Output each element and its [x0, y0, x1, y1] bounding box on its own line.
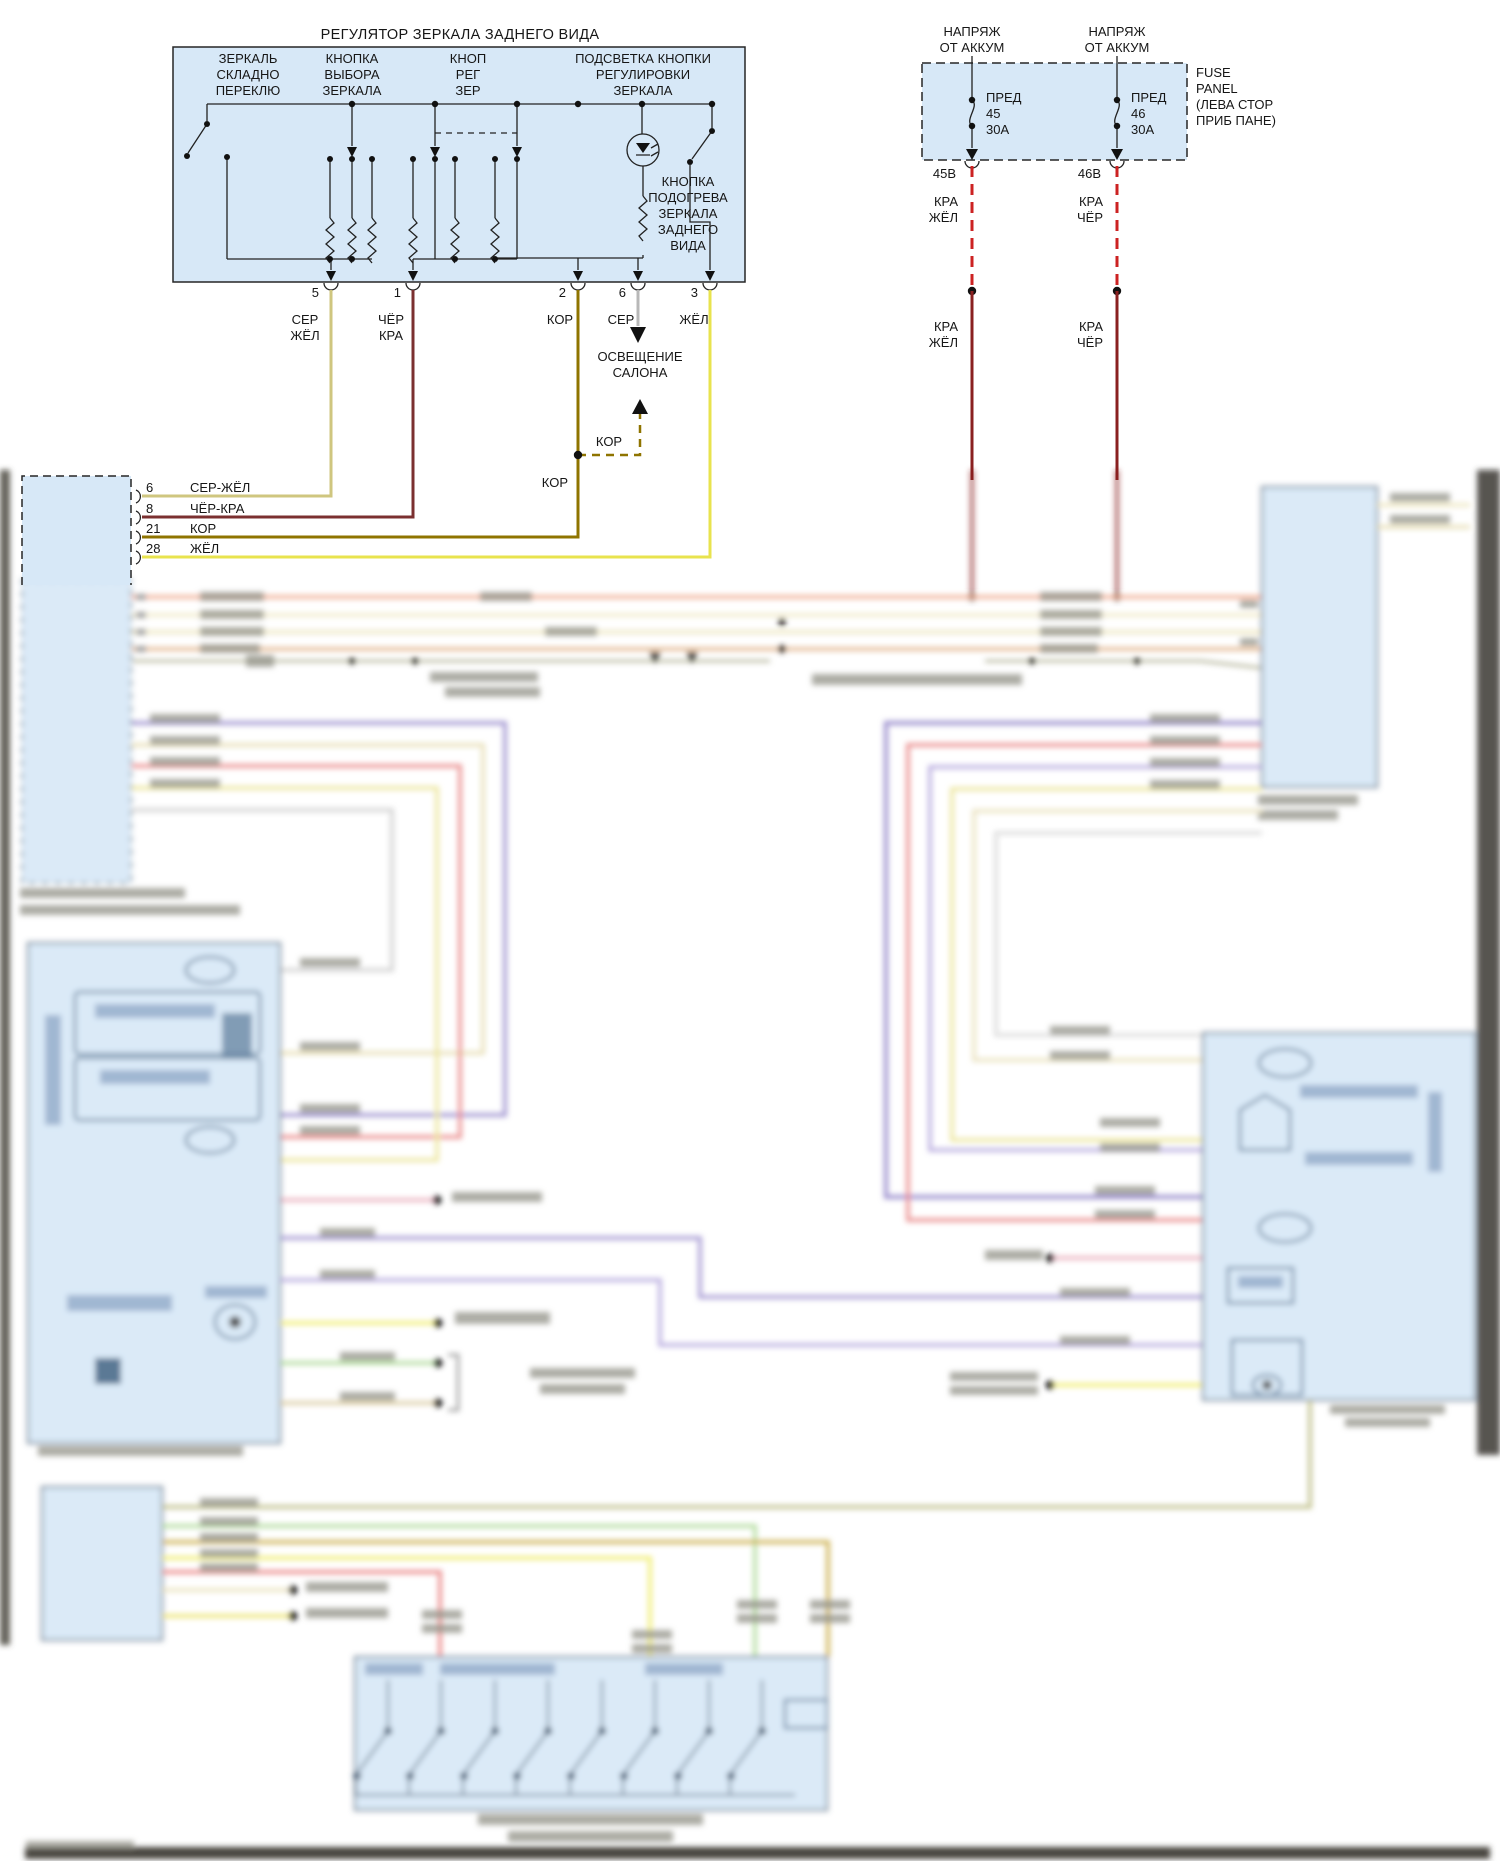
fuse-panel-box — [922, 63, 1187, 160]
arrow-down-icon — [630, 327, 646, 343]
wire-color-label: КРА — [1079, 194, 1103, 209]
blur-haze-overlay — [0, 470, 1500, 1861]
fuse-label: ПРЕД — [1131, 90, 1167, 105]
fuse-panel-name: FUSE — [1196, 65, 1231, 80]
wire-color-label: КРА — [1079, 319, 1103, 334]
wiring-diagram: РЕГУЛЯТОР ЗЕРКАЛА ЗАДНЕГО ВИДА ЗЕРКАЛЬ С… — [0, 0, 1500, 1861]
heater-switch-label: КНОПКА — [662, 174, 715, 189]
wire-color-label: ЖЁЛ — [679, 312, 708, 327]
mirror-block-pins: 5 1 2 6 3 — [312, 283, 717, 300]
adjust-switch-label: ЗЕР — [455, 83, 480, 98]
fuse-label: ПРЕД — [986, 90, 1022, 105]
fuse-panel-name: PANEL — [1196, 81, 1238, 96]
connector-pin-color: ЧЁР-КРА — [190, 501, 245, 516]
cabin-light-label: ОСВЕЩЕНИЕ — [597, 349, 682, 364]
wire-color-label: КОР — [542, 475, 568, 490]
adjust-switch-label: КНОП — [450, 51, 486, 66]
fuse-label: 30А — [1131, 122, 1154, 137]
wire-color-label: ЖЁЛ — [929, 335, 958, 350]
connector-pin-color: КОР — [190, 521, 216, 536]
connector-pin-number: 28 — [146, 541, 160, 556]
adjust-switch-label: РЕГ — [456, 67, 480, 82]
left-connector-box — [22, 476, 131, 585]
backlight-label: ПОДСВЕТКА КНОПКИ — [575, 51, 711, 66]
pin-number: 3 — [691, 285, 698, 300]
pin-number: 6 — [619, 285, 626, 300]
pin-number: 1 — [394, 285, 401, 300]
fuse-panel-name: (ЛЕВА СТОР — [1196, 97, 1273, 112]
fold-switch-label: ПЕРЕКЛЮ — [216, 83, 281, 98]
select-switch-label: ВЫБОРА — [324, 67, 379, 82]
wire-color-label: ЖЁЛ — [290, 328, 319, 343]
wire-color-label: ЧЁР — [1077, 335, 1103, 350]
heater-switch-label: ЗЕРКАЛА — [659, 206, 718, 221]
connector-pin-number: 21 — [146, 521, 160, 536]
fold-switch-label: ЗЕРКАЛЬ — [219, 51, 278, 66]
wire-color-labels: СЕР ЖЁЛ ЧЁР КРА КОР СЕР ЖЁЛ — [290, 312, 708, 343]
battery-voltage-label: ОТ АККУМ — [1085, 40, 1150, 55]
backlight-label: ЗЕРКАЛА — [614, 83, 673, 98]
wire-color-label: КОР — [596, 434, 622, 449]
heater-switch-label: ПОДОГРЕВА — [648, 190, 728, 205]
wire-color-label: КОР — [547, 312, 573, 327]
battery-voltage-label: ОТ АККУМ — [940, 40, 1005, 55]
fuse-label: 30А — [986, 122, 1009, 137]
fuse-label: 46 — [1131, 106, 1145, 121]
backlight-label: РЕГУЛИРОВКИ — [596, 67, 690, 82]
wire-color-label: ЧЁР — [378, 312, 404, 327]
wiring-diagram-page: РЕГУЛЯТОР ЗЕРКАЛА ЗАДНЕГО ВИДА ЗЕРКАЛЬ С… — [0, 0, 1500, 1861]
wire-color-label: КРА — [934, 194, 958, 209]
fold-switch-label: СКЛАДНО — [217, 67, 280, 82]
connector-pin-number: 8 — [146, 501, 153, 516]
cabin-light-reference: ОСВЕЩЕНИЕ САЛОНА — [597, 327, 682, 380]
arrow-up-icon — [632, 399, 648, 414]
wire-color-label: ЖЁЛ — [929, 210, 958, 225]
connector-pin-color: СЕР-ЖЁЛ — [190, 480, 250, 495]
fuse-panel-name: ПРИБ ПАНЕ) — [1196, 113, 1276, 128]
wire-color-label: СЕР — [608, 312, 635, 327]
heater-switch-label: ЗАДНЕГО — [658, 222, 718, 237]
splice-dot — [574, 451, 582, 459]
fuse-panel: НАПРЯЖ ОТ АККУМ НАПРЯЖ ОТ АККУМ FUSE PAN… — [922, 24, 1276, 480]
pin-number: 2 — [559, 285, 566, 300]
wire-color-label: СЕР — [292, 312, 319, 327]
heater-switch-label: ВИДА — [670, 238, 706, 253]
select-switch-label: КНОПКА — [326, 51, 379, 66]
battery-voltage-label: НАПРЯЖ — [1088, 24, 1145, 39]
fuse-output-label: 46В — [1078, 166, 1101, 181]
connector-pin-color: ЖЁЛ — [190, 541, 219, 556]
battery-voltage-label: НАПРЯЖ — [943, 24, 1000, 39]
fuse-output-label: 45В — [933, 166, 956, 181]
select-switch-label: ЗЕРКАЛА — [323, 83, 382, 98]
diagram-title: РЕГУЛЯТОР ЗЕРКАЛА ЗАДНЕГО ВИДА — [321, 27, 600, 43]
connector-pin-number: 6 — [146, 480, 153, 495]
pin-number: 5 — [312, 285, 319, 300]
wire-color-label: КРА — [934, 319, 958, 334]
fuse-label: 45 — [986, 106, 1000, 121]
wire-color-label: ЧЁР — [1077, 210, 1103, 225]
cabin-light-label: САЛОНА — [613, 365, 668, 380]
wire-color-label: КРА — [379, 328, 403, 343]
